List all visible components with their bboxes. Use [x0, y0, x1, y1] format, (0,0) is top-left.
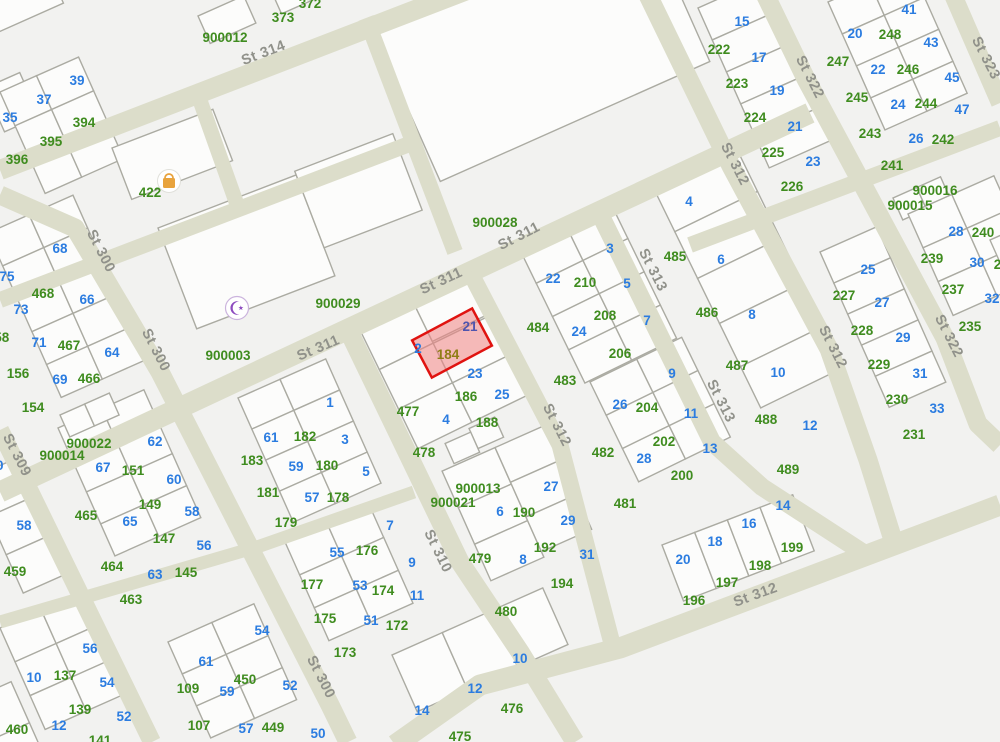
address-number-58[interactable]: 58 — [184, 504, 200, 519]
address-number-8[interactable]: 8 — [519, 552, 527, 567]
parcel-number-396[interactable]: 396 — [6, 152, 29, 167]
parcel-number-177[interactable]: 177 — [301, 577, 324, 592]
parcel-number-900029[interactable]: 900029 — [315, 296, 360, 311]
parcel-number-450[interactable]: 450 — [234, 672, 257, 687]
parcel-number-156[interactable]: 156 — [7, 366, 30, 381]
address-number-31[interactable]: 31 — [912, 366, 928, 381]
parcel-number-228[interactable]: 228 — [851, 323, 874, 338]
parcel-number-483[interactable]: 483 — [554, 373, 577, 388]
parcel-number-198[interactable]: 198 — [749, 558, 772, 573]
parcel-number-179[interactable]: 179 — [275, 515, 298, 530]
parcel-number-486[interactable]: 486 — [696, 305, 719, 320]
parcel-number-210[interactable]: 210 — [574, 275, 597, 290]
address-number-71[interactable]: 71 — [31, 335, 47, 350]
address-number-66[interactable]: 66 — [79, 292, 95, 307]
address-number-68[interactable]: 68 — [52, 241, 68, 256]
parcel-number-172[interactable]: 172 — [386, 618, 409, 633]
parcel-number-145[interactable]: 145 — [175, 565, 198, 580]
address-number-28[interactable]: 28 — [636, 451, 652, 466]
address-number-20[interactable]: 20 — [847, 26, 862, 41]
address-number-65[interactable]: 65 — [122, 514, 138, 529]
parcel-number-900014[interactable]: 900014 — [39, 448, 85, 463]
parcel-number-244[interactable]: 244 — [915, 96, 938, 111]
parcel-number-460[interactable]: 460 — [6, 722, 29, 737]
parcel-number-468[interactable]: 468 — [32, 286, 55, 301]
address-number-53[interactable]: 53 — [352, 578, 368, 593]
parcel-number-109[interactable]: 109 — [177, 681, 200, 696]
parcel-number-154[interactable]: 154 — [22, 400, 45, 415]
parcel-number-237[interactable]: 237 — [942, 282, 965, 297]
address-number-52[interactable]: 52 — [282, 678, 297, 693]
address-number-64[interactable]: 64 — [104, 345, 120, 360]
address-number-13[interactable]: 13 — [702, 441, 718, 456]
parcel-number-372[interactable]: 372 — [299, 0, 322, 11]
address-number-28[interactable]: 28 — [948, 224, 964, 239]
parcel-number-373[interactable]: 373 — [272, 10, 295, 25]
parcel-number-241[interactable]: 241 — [881, 158, 904, 173]
address-number-22[interactable]: 22 — [545, 271, 560, 286]
address-number-23[interactable]: 23 — [805, 154, 821, 169]
parcel-number-196[interactable]: 196 — [683, 593, 706, 608]
parcel-number-151[interactable]: 151 — [122, 463, 145, 478]
parcel-number-137[interactable]: 137 — [54, 668, 77, 683]
address-number-3[interactable]: 3 — [341, 432, 349, 447]
parcel-number-395[interactable]: 395 — [40, 134, 63, 149]
map-canvas[interactable]: St 314St 311St 311St 311St 300St 300St 3… — [0, 0, 1000, 742]
parcel-number-475[interactable]: 475 — [449, 729, 472, 742]
address-number-73[interactable]: 73 — [13, 302, 29, 317]
address-number-10[interactable]: 10 — [26, 670, 41, 685]
address-number-11[interactable]: 11 — [684, 406, 699, 421]
parcel-number-190[interactable]: 190 — [513, 505, 536, 520]
parcel-number-202[interactable]: 202 — [653, 434, 676, 449]
parcel-number-480[interactable]: 480 — [495, 604, 518, 619]
parcel-number-208[interactable]: 208 — [594, 308, 617, 323]
address-number-67[interactable]: 67 — [95, 460, 110, 475]
parcel-number-192[interactable]: 192 — [534, 540, 557, 555]
address-number-54[interactable]: 54 — [99, 675, 115, 690]
address-number-24[interactable]: 24 — [890, 97, 906, 112]
parcel-number-478[interactable]: 478 — [413, 445, 436, 460]
address-number-60[interactable]: 60 — [0, 458, 4, 473]
parcel-number-485[interactable]: 485 — [664, 249, 687, 264]
address-number-1[interactable]: 1 — [326, 395, 334, 410]
mosque-marker[interactable] — [226, 297, 249, 320]
parcel-number-900015[interactable]: 900015 — [887, 198, 933, 213]
parcel-number-394[interactable]: 394 — [73, 115, 96, 130]
parcel-number-174[interactable]: 174 — [372, 583, 395, 598]
parcel-number-224[interactable]: 224 — [744, 110, 767, 125]
parcel-number-194[interactable]: 194 — [551, 576, 574, 591]
address-number-26[interactable]: 26 — [908, 131, 924, 146]
parcel-number-900021[interactable]: 900021 — [430, 495, 476, 510]
parcel-number-149[interactable]: 149 — [139, 497, 162, 512]
address-number-29[interactable]: 29 — [560, 513, 575, 528]
parcel-number-482[interactable]: 482 — [592, 445, 615, 460]
parcel-number-900003[interactable]: 900003 — [205, 348, 251, 363]
parcel-number-900013[interactable]: 900013 — [455, 481, 501, 496]
parcel-number-107[interactable]: 107 — [188, 718, 211, 733]
parcel-number-139[interactable]: 139 — [69, 702, 92, 717]
parcel-number-463[interactable]: 463 — [120, 592, 143, 607]
parcel-number-248[interactable]: 248 — [879, 27, 902, 42]
address-number-14[interactable]: 14 — [414, 703, 430, 718]
address-number-61[interactable]: 61 — [263, 430, 279, 445]
parcel-number-227[interactable]: 227 — [833, 288, 856, 303]
address-number-17[interactable]: 17 — [751, 50, 766, 65]
parcel-number-481[interactable]: 481 — [614, 496, 637, 511]
parcel-number-200[interactable]: 200 — [671, 468, 694, 483]
address-number-23[interactable]: 23 — [467, 366, 483, 381]
address-number-75[interactable]: 75 — [0, 269, 15, 284]
address-number-47[interactable]: 47 — [954, 102, 969, 117]
address-number-26[interactable]: 26 — [612, 397, 628, 412]
address-number-32[interactable]: 32 — [984, 291, 999, 306]
address-number-63[interactable]: 63 — [147, 567, 163, 582]
address-number-7[interactable]: 7 — [386, 518, 394, 533]
parcel-number-197[interactable]: 197 — [716, 575, 739, 590]
address-number-15[interactable]: 15 — [734, 14, 750, 29]
parcel-number-245[interactable]: 245 — [846, 90, 869, 105]
parcel-number-178[interactable]: 178 — [327, 490, 350, 505]
parcel-number-243[interactable]: 243 — [859, 126, 882, 141]
address-number-5[interactable]: 5 — [623, 276, 631, 291]
address-number-9[interactable]: 9 — [668, 366, 676, 381]
address-number-31[interactable]: 31 — [579, 547, 595, 562]
address-number-59[interactable]: 59 — [219, 684, 234, 699]
address-number-12[interactable]: 12 — [467, 681, 482, 696]
parcel-number-479[interactable]: 479 — [469, 551, 492, 566]
address-number-60[interactable]: 60 — [166, 472, 181, 487]
parcel-number-465[interactable]: 465 — [75, 508, 98, 523]
parcel-number-222[interactable]: 222 — [708, 42, 731, 57]
address-number-35[interactable]: 35 — [2, 110, 18, 125]
parcel-number-900012[interactable]: 900012 — [202, 30, 247, 45]
parcel-number-226[interactable]: 226 — [781, 179, 804, 194]
address-number-27[interactable]: 27 — [874, 295, 889, 310]
highlighted-parcel-number[interactable]: 184 — [437, 347, 460, 362]
parcel-number-186[interactable]: 186 — [455, 389, 478, 404]
address-number-20[interactable]: 20 — [675, 552, 690, 567]
parcel-number-449[interactable]: 449 — [262, 720, 285, 735]
address-number-33[interactable]: 33 — [929, 401, 945, 416]
parcel-number-204[interactable]: 204 — [636, 400, 659, 415]
parcel-number-231[interactable]: 231 — [903, 427, 926, 442]
address-number-10[interactable]: 10 — [770, 365, 785, 380]
parcel-number-487[interactable]: 487 — [726, 358, 749, 373]
parcel-number-180[interactable]: 180 — [316, 458, 339, 473]
parcel-number-477[interactable]: 477 — [397, 404, 420, 419]
parcel-number-175[interactable]: 175 — [314, 611, 337, 626]
address-number-7[interactable]: 7 — [643, 313, 651, 328]
parcel-number-246[interactable]: 246 — [897, 62, 920, 77]
parcel-number-188[interactable]: 188 — [476, 415, 499, 430]
address-number-3[interactable]: 3 — [606, 241, 614, 256]
address-number-9[interactable]: 9 — [408, 555, 416, 570]
parcel-number-476[interactable]: 476 — [501, 701, 524, 716]
parcel-number-466[interactable]: 466 — [78, 371, 101, 386]
address-number-43[interactable]: 43 — [923, 35, 939, 50]
parcel-number-240[interactable]: 240 — [972, 225, 995, 240]
parcel-number-422[interactable]: 422 — [139, 185, 162, 200]
parcel-number-900028[interactable]: 900028 — [472, 215, 518, 230]
address-number-61[interactable]: 61 — [198, 654, 214, 669]
address-number-37[interactable]: 37 — [36, 92, 51, 107]
address-number-21[interactable]: 21 — [787, 119, 803, 134]
parcel-number-238[interactable]: 238 — [994, 257, 1000, 272]
parcel-number-488[interactable]: 488 — [755, 412, 778, 427]
address-number-51[interactable]: 51 — [363, 613, 379, 628]
parcel-number-176[interactable]: 176 — [356, 543, 379, 558]
parcel-number-900016[interactable]: 900016 — [912, 183, 958, 198]
address-number-55[interactable]: 55 — [329, 545, 345, 560]
address-number-41[interactable]: 41 — [901, 2, 917, 17]
address-number-19[interactable]: 19 — [769, 83, 784, 98]
address-number-4[interactable]: 4 — [442, 412, 450, 427]
address-number-45[interactable]: 45 — [944, 70, 960, 85]
parcel-number-182[interactable]: 182 — [294, 429, 317, 444]
highlighted-parcel-address-number[interactable]: 21 — [462, 319, 478, 334]
parcel-number-464[interactable]: 464 — [101, 559, 124, 574]
parcel-number-247[interactable]: 247 — [827, 54, 850, 69]
parcel-map[interactable]: St 314St 311St 311St 311St 300St 300St 3… — [0, 0, 1000, 742]
parcel-number-459[interactable]: 459 — [4, 564, 27, 579]
parcel-number-181[interactable]: 181 — [257, 485, 280, 500]
parcel-number-489[interactable]: 489 — [777, 462, 800, 477]
address-number-29[interactable]: 29 — [895, 330, 910, 345]
parcel-number-199[interactable]: 199 — [781, 540, 804, 555]
address-number-54[interactable]: 54 — [254, 623, 270, 638]
shop-marker[interactable] — [158, 170, 181, 193]
parcel-number-242[interactable]: 242 — [932, 132, 955, 147]
address-number-59[interactable]: 59 — [288, 459, 303, 474]
address-number-6[interactable]: 6 — [717, 252, 725, 267]
address-number-30[interactable]: 30 — [969, 255, 984, 270]
parcel-number-235[interactable]: 235 — [959, 319, 982, 334]
address-number-57[interactable]: 57 — [238, 721, 253, 736]
parcel-number-141[interactable]: 141 — [89, 733, 112, 742]
address-number-27[interactable]: 27 — [543, 479, 558, 494]
shopping-bag-icon — [163, 178, 175, 188]
parcel-number-239[interactable]: 239 — [921, 251, 944, 266]
address-number-62[interactable]: 62 — [147, 434, 162, 449]
address-number-58[interactable]: 58 — [16, 518, 32, 533]
parcel-number-484[interactable]: 484 — [527, 320, 550, 335]
address-number-8[interactable]: 8 — [748, 307, 756, 322]
address-number-57[interactable]: 57 — [304, 490, 319, 505]
parcel-number-467[interactable]: 467 — [58, 338, 81, 353]
address-number-52[interactable]: 52 — [116, 709, 131, 724]
parcel-number-223[interactable]: 223 — [726, 76, 749, 91]
address-number-18[interactable]: 18 — [707, 534, 723, 549]
address-number-39[interactable]: 39 — [69, 73, 84, 88]
address-number-10[interactable]: 10 — [512, 651, 527, 666]
address-number-12[interactable]: 12 — [802, 418, 817, 433]
address-number-24[interactable]: 24 — [571, 324, 587, 339]
parcel-number-183[interactable]: 183 — [241, 453, 264, 468]
address-number-11[interactable]: 11 — [410, 588, 425, 603]
address-number-50[interactable]: 50 — [310, 726, 325, 741]
address-number-22[interactable]: 22 — [870, 62, 885, 77]
parcel-number-206[interactable]: 206 — [609, 346, 632, 361]
address-number-16[interactable]: 16 — [741, 516, 757, 531]
parcel-number-225[interactable]: 225 — [762, 145, 785, 160]
address-number-14[interactable]: 14 — [775, 498, 791, 513]
parcel-number-229[interactable]: 229 — [868, 357, 891, 372]
parcel-number-230[interactable]: 230 — [886, 392, 909, 407]
address-number-6[interactable]: 6 — [496, 504, 504, 519]
address-number-69[interactable]: 69 — [52, 372, 67, 387]
address-number-25[interactable]: 25 — [494, 387, 510, 402]
address-number-12[interactable]: 12 — [51, 718, 66, 733]
address-number-5[interactable]: 5 — [362, 464, 370, 479]
address-number-56[interactable]: 56 — [82, 641, 98, 656]
address-number-56[interactable]: 56 — [196, 538, 212, 553]
address-number-25[interactable]: 25 — [860, 262, 876, 277]
parcel-number-173[interactable]: 173 — [334, 645, 357, 660]
address-number-2[interactable]: 2 — [414, 341, 422, 356]
parcel-number-147[interactable]: 147 — [153, 531, 176, 546]
address-number-4[interactable]: 4 — [685, 194, 693, 209]
parcel-number-158[interactable]: 158 — [0, 330, 10, 345]
